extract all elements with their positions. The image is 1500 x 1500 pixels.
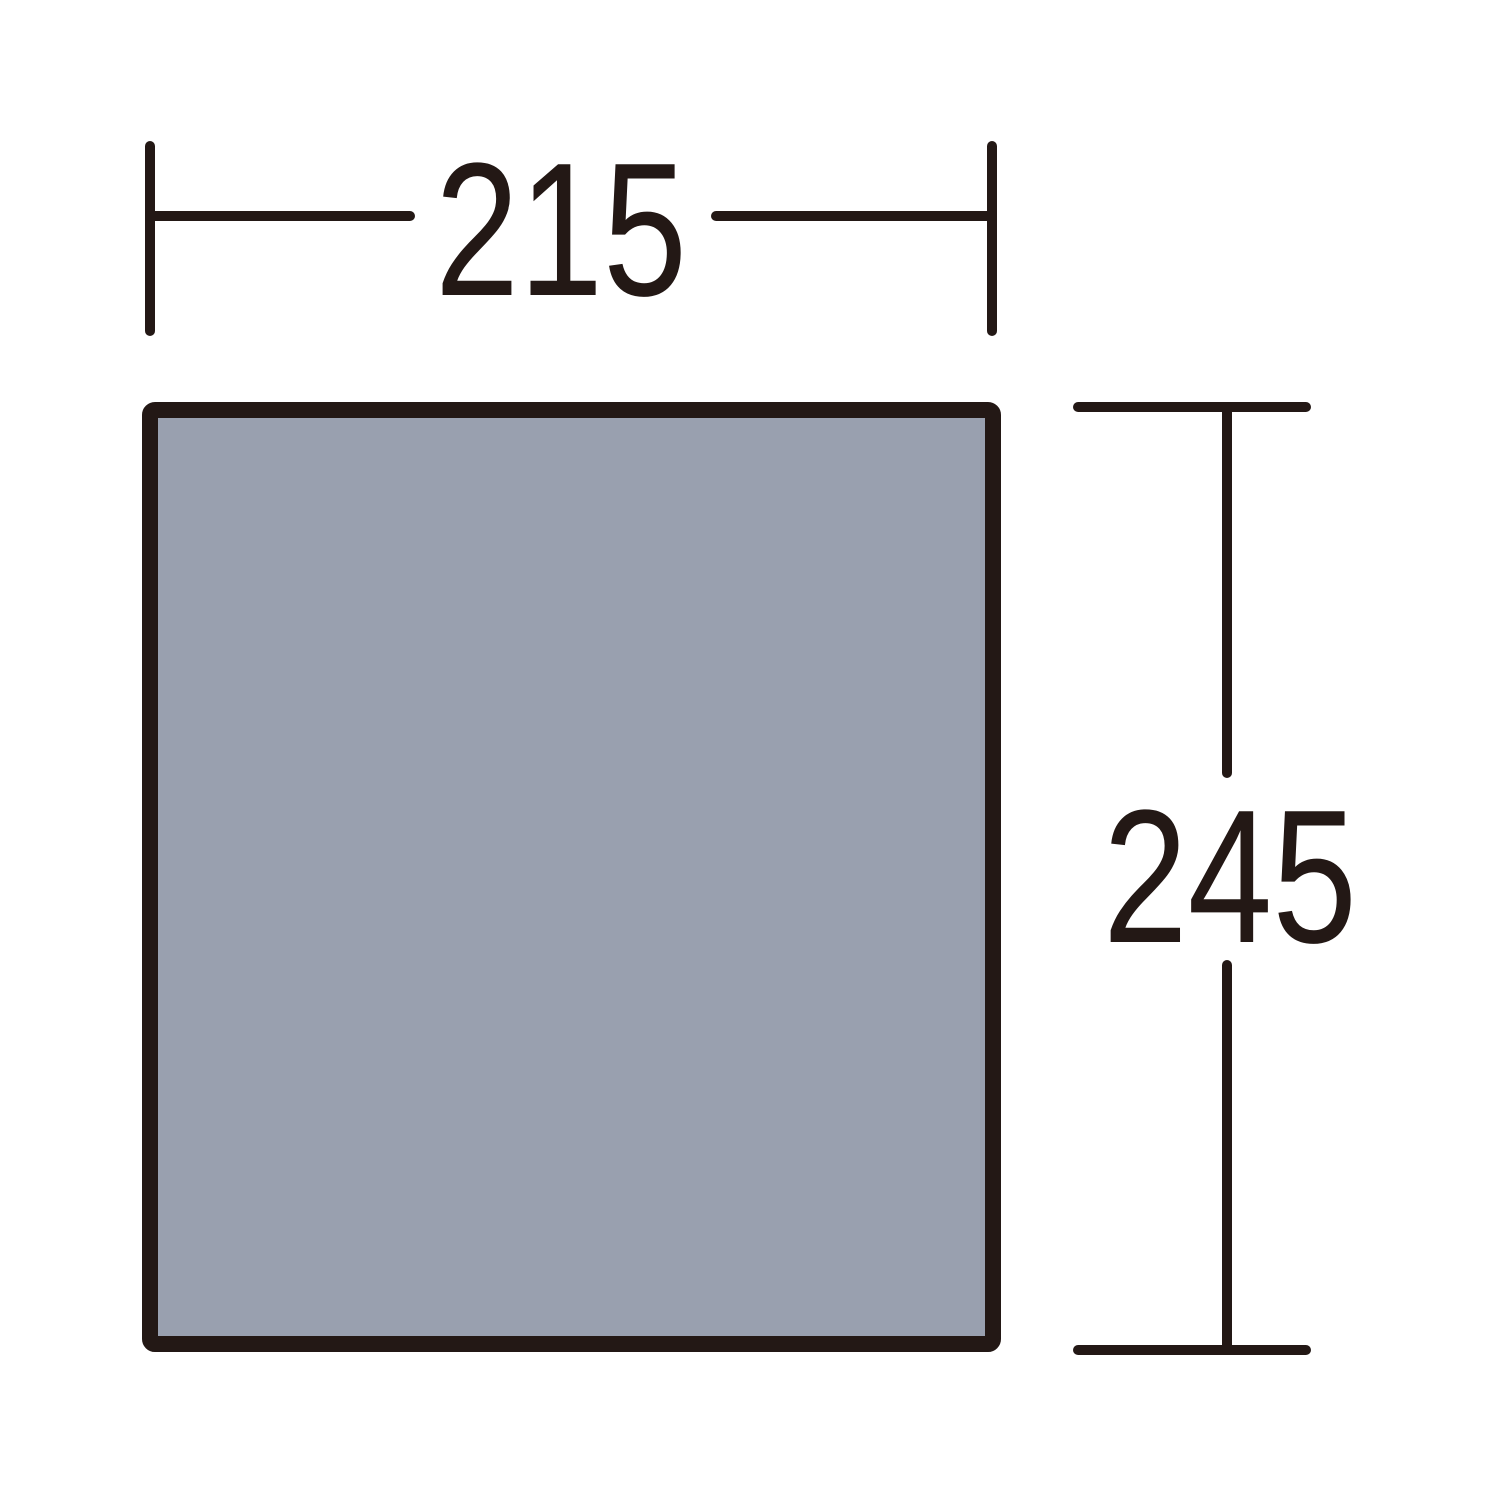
width-dimension: 215: [150, 124, 992, 336]
footprint-rect: [150, 410, 993, 1344]
dimension-diagram-page: 215 245: [0, 0, 1500, 1500]
width-dimension-label: 215: [435, 124, 687, 336]
height-dimension: 245: [1078, 407, 1357, 1350]
dimension-diagram: 215 245: [0, 0, 1500, 1500]
height-dimension-label: 245: [1103, 771, 1357, 983]
